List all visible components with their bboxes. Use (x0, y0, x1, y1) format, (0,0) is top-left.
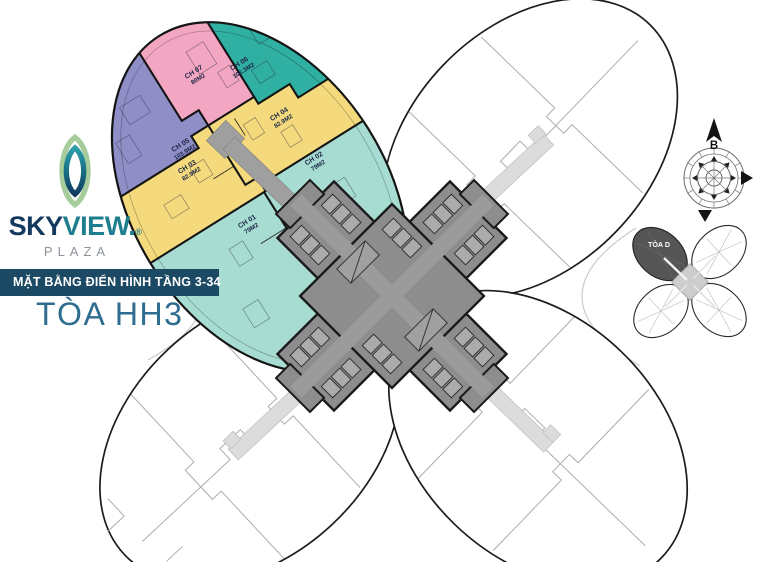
minimap-tower-label: TÒA D (648, 240, 670, 249)
compass: B (683, 118, 753, 222)
brand-subtitle: PLAZA (4, 244, 146, 259)
compass-spokes (698, 162, 730, 194)
floorplan-page: CH 0780M2 CH 06106.3M2 CH 05103.9M2 CH 0… (0, 0, 780, 562)
floor-banner: MẶT BẰNG ĐIỂN HÌNH TẦNG 3-34 (0, 269, 219, 296)
location-minimap: TÒA D (622, 215, 756, 348)
skyview-logo: SKYVIEW.® PLAZA (4, 134, 146, 259)
south-arrow-icon (698, 210, 712, 222)
registered-mark: ® (135, 227, 141, 237)
logo-mark-icon (48, 134, 102, 208)
tower-title: TÒA HH3 (36, 296, 183, 333)
compass-north-label: B (710, 140, 718, 152)
north-arrow-icon (706, 118, 722, 142)
brand-sky: SKY (9, 211, 63, 241)
brand-name: SKYVIEW.® (4, 213, 146, 240)
east-arrow-icon (741, 171, 753, 185)
brand-view: VIEW (63, 211, 129, 241)
